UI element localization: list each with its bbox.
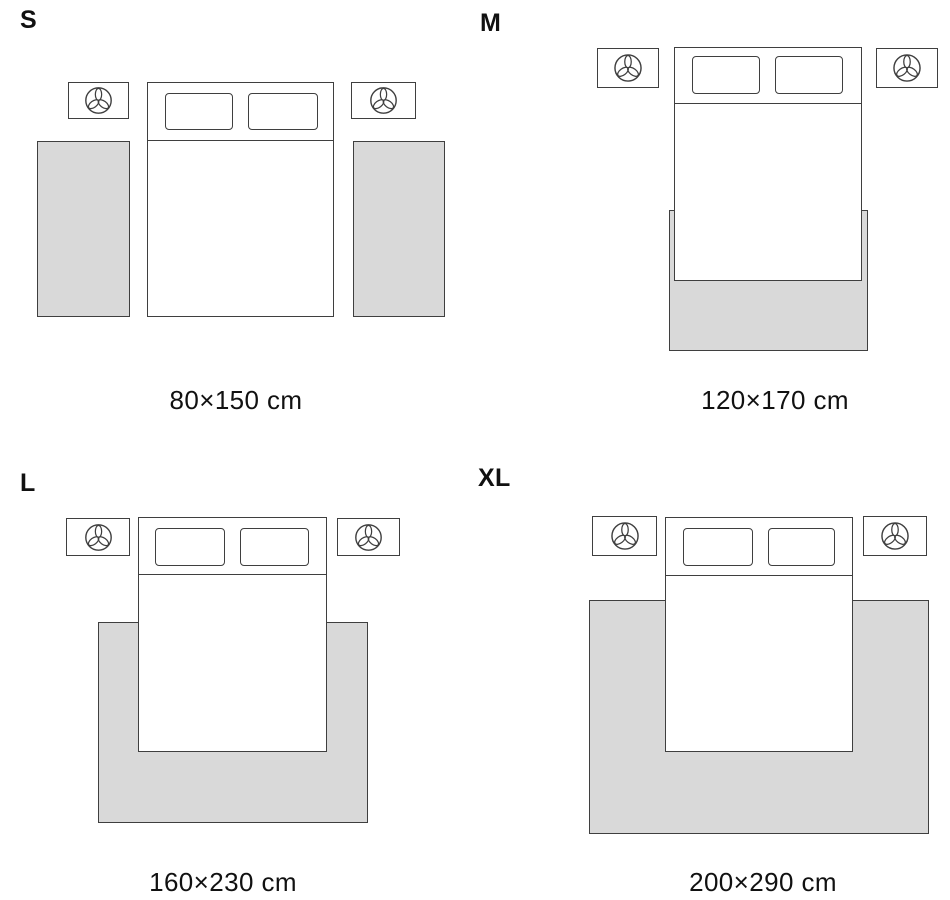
rug-runner-left <box>37 141 130 317</box>
pillow-left <box>683 528 753 566</box>
plant-icon <box>610 50 646 86</box>
bed <box>138 517 327 752</box>
pillow-right <box>775 56 843 94</box>
rug-runner-right <box>353 141 445 317</box>
size-caption-xl: 200×290 cm <box>613 868 913 897</box>
bed <box>674 47 862 281</box>
size-label-xl: XL <box>478 466 511 491</box>
bed <box>147 82 334 317</box>
nightstand-right <box>351 82 416 119</box>
size-label-s: S <box>20 8 37 33</box>
pillow-right <box>768 528 835 566</box>
plant-icon <box>607 518 643 554</box>
nightstand-right <box>337 518 400 556</box>
size-label-m: M <box>480 11 501 36</box>
nightstand-left <box>592 516 657 556</box>
nightstand-left <box>597 48 659 88</box>
plant-icon <box>366 83 401 118</box>
plant-icon <box>81 520 116 555</box>
size-caption-m: 120×170 cm <box>625 386 925 415</box>
plant-icon <box>889 50 925 86</box>
pillow-left <box>165 93 233 130</box>
nightstand-left <box>66 518 130 556</box>
size-caption-s: 80×150 cm <box>86 386 386 415</box>
pillow-left <box>155 528 225 566</box>
plant-icon <box>81 83 116 118</box>
plant-icon <box>877 518 913 554</box>
bed <box>665 517 853 752</box>
plant-icon <box>351 520 386 555</box>
size-caption-l: 160×230 cm <box>73 868 373 897</box>
nightstand-left <box>68 82 129 119</box>
pillow-left <box>692 56 760 94</box>
nightstand-right <box>876 48 938 88</box>
size-label-l: L <box>20 471 36 496</box>
pillow-right <box>248 93 318 130</box>
rug-size-guide: S 80×150 cm M 120×170 cm L 16 <box>0 0 950 900</box>
nightstand-right <box>863 516 927 556</box>
pillow-right <box>240 528 309 566</box>
